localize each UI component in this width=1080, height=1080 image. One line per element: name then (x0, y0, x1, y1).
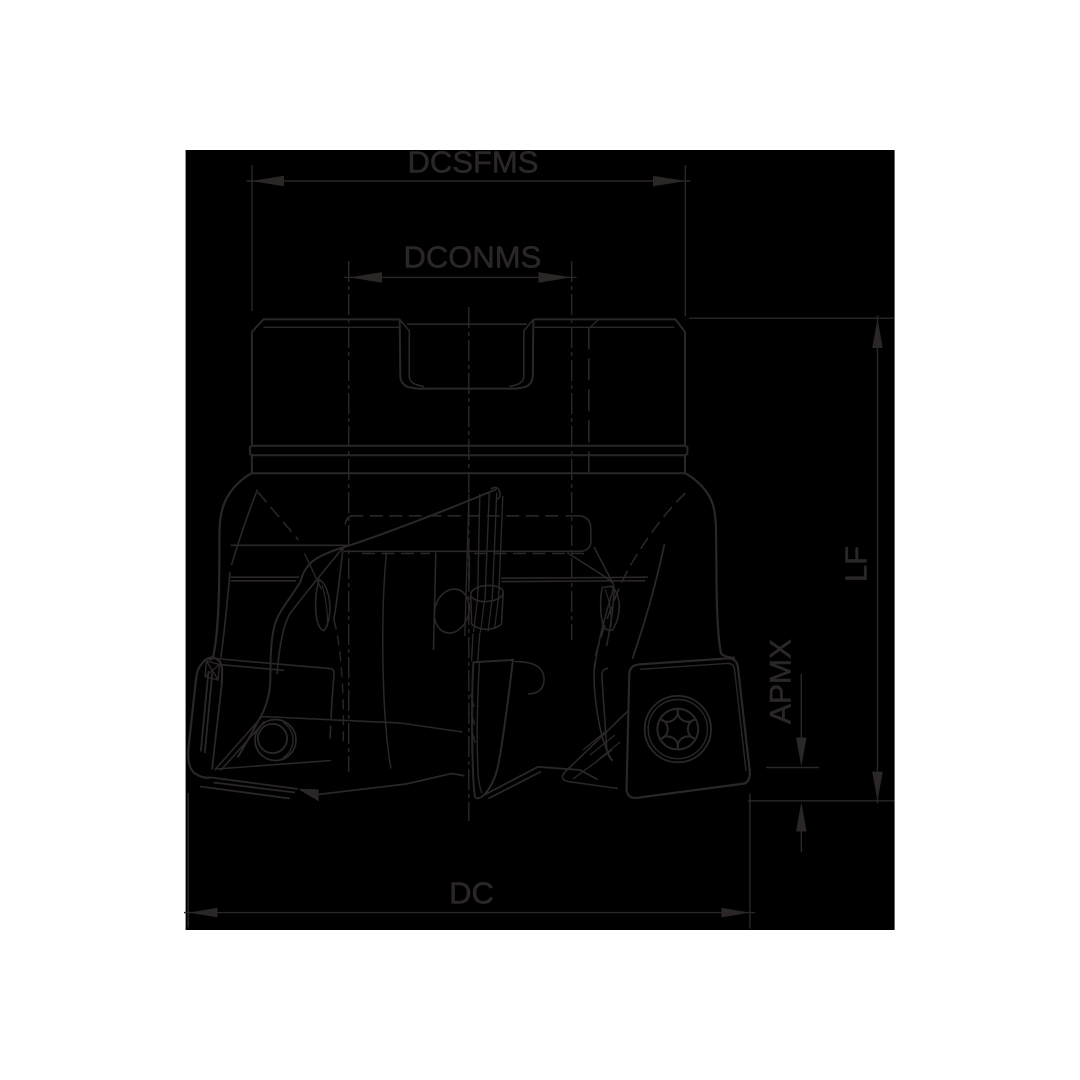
svg-text:DCSFMS: DCSFMS (408, 144, 539, 179)
svg-text:APMX: APMX (764, 639, 797, 724)
svg-text:DC: DC (449, 876, 494, 911)
svg-text:DCONMS: DCONMS (404, 240, 542, 275)
svg-text:LF: LF (838, 546, 873, 582)
